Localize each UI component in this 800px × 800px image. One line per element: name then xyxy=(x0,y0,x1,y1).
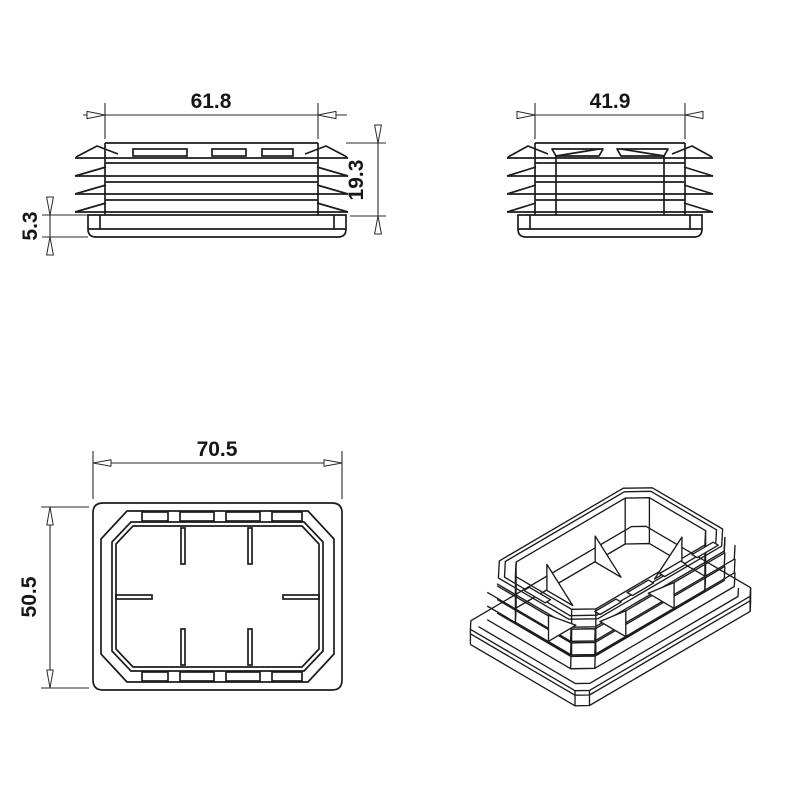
dim-front-flange-height: 5.3 xyxy=(19,211,42,240)
front-view-linework xyxy=(42,103,386,255)
isometric-view-linework xyxy=(470,488,750,706)
top-view: 70.5 50.5 xyxy=(18,438,342,690)
technical-drawing-page: 61.8 19.3 5.3 41.9 70.5 50.5 xyxy=(0,0,800,800)
dim-top-width: 70.5 xyxy=(197,438,238,461)
dim-front-width: 61.8 xyxy=(191,90,232,113)
drawing-canvas: 61.8 19.3 5.3 41.9 70.5 50.5 xyxy=(0,0,800,800)
side-view-linework xyxy=(507,103,713,237)
isometric-view xyxy=(470,488,750,706)
dim-side-width: 41.9 xyxy=(590,90,631,113)
top-view-linework xyxy=(41,451,342,690)
dim-front-insert-depth: 19.3 xyxy=(345,160,368,201)
side-view: 41.9 xyxy=(507,90,713,237)
dim-top-height: 50.5 xyxy=(18,576,41,617)
front-view: 61.8 19.3 5.3 xyxy=(19,90,386,255)
